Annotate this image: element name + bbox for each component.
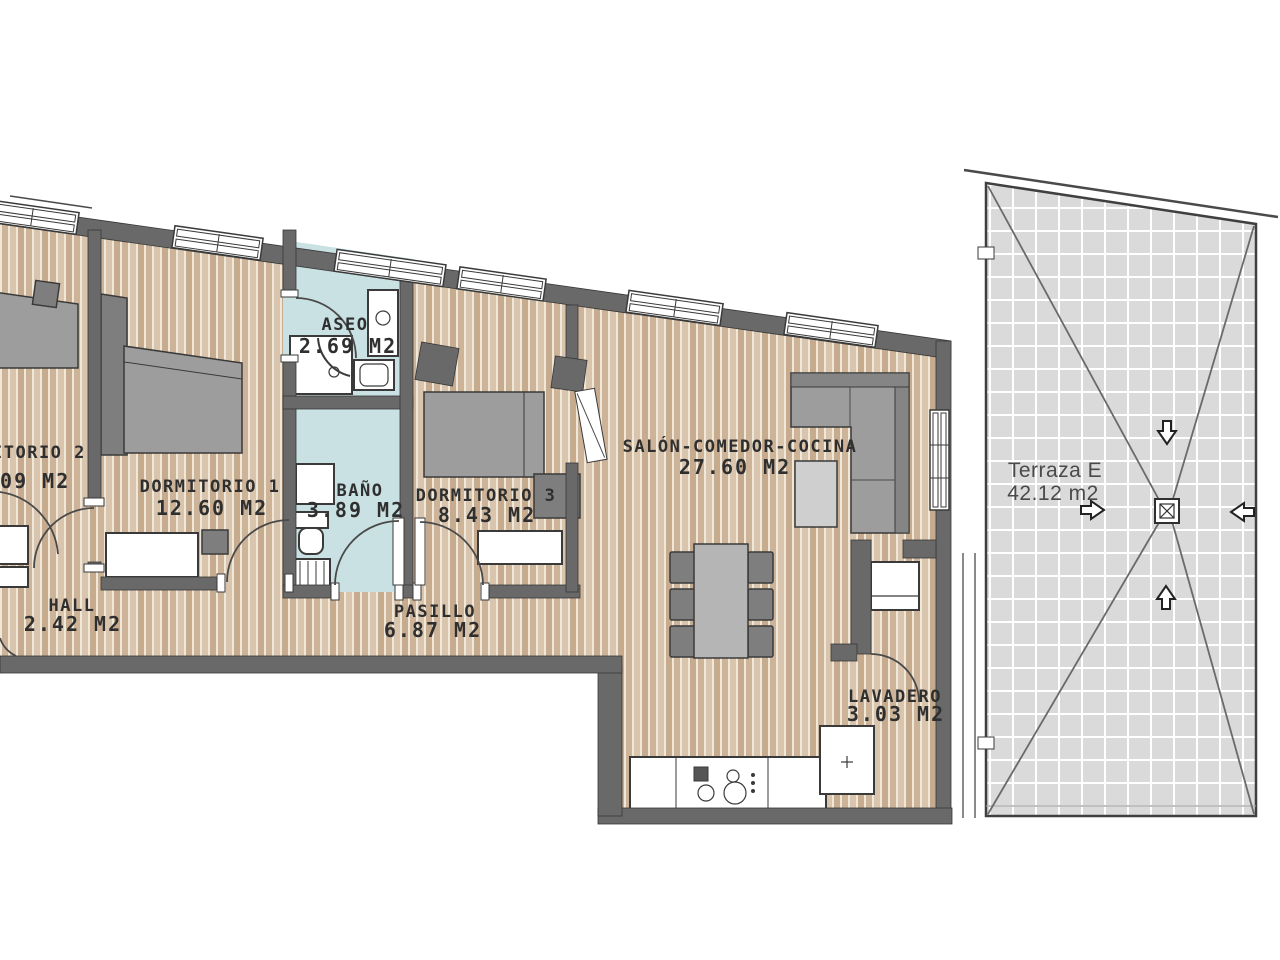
- dining-chair: [748, 626, 773, 657]
- door-jamb: [285, 574, 293, 592]
- dormitorio1-area: 12.60 M2: [156, 496, 268, 520]
- bano-toilet-bowl: [299, 528, 323, 554]
- dormitorio2-nightstand: [32, 280, 59, 307]
- hall-area: 2.42 M2: [24, 612, 122, 636]
- lavadero-partition-foot: [831, 644, 857, 661]
- dormitorio1-bottom-wall: [101, 577, 221, 590]
- floor-drain-icon: [1155, 499, 1179, 523]
- bano-area: 3.89 M2: [307, 498, 405, 522]
- floorplan-canvas: ITORIO 2 .09 M2 DORMITORIO 1 12.60 M2 AS…: [0, 0, 1280, 960]
- salon-label: SALÓN-COMEDOR-COCINA: [623, 435, 858, 457]
- dormitorio2-label: ITORIO 2: [0, 443, 86, 463]
- door-jamb: [395, 583, 403, 600]
- terraza-area: 42.12 m2: [1007, 482, 1099, 505]
- dining-table-set: [670, 544, 773, 658]
- dormitorio1-bed: [124, 346, 242, 453]
- dormitorio1-nightstand: [202, 530, 228, 554]
- salon-side-window: [930, 410, 949, 510]
- dormitorio3-bench: [478, 531, 562, 564]
- dining-chair: [748, 589, 773, 620]
- kitchen-bottom-wall: [598, 808, 952, 824]
- aseo-area: 2.69 M2: [299, 334, 397, 358]
- terrace-edge-notch: [978, 737, 994, 749]
- aseo-bano-divider-wall: [283, 396, 413, 409]
- dining-chair: [670, 626, 695, 657]
- dormitorio3-area: 8.43 M2: [438, 503, 536, 527]
- dormitorio2-partition-wall: [88, 230, 101, 502]
- dormitorio3-bottom-wall: [484, 585, 580, 598]
- lavadero-partition-wall: [851, 540, 871, 654]
- lavadero-area: 3.03 M2: [847, 702, 945, 726]
- door-jamb: [84, 498, 104, 506]
- lavadero-top-wall: [903, 540, 936, 558]
- hall-cabinet: [0, 567, 28, 587]
- door-jamb: [331, 583, 339, 600]
- dormitorio1-bench: [106, 533, 198, 577]
- step-wall: [598, 666, 622, 816]
- door-jamb: [481, 583, 489, 600]
- dormitorio1-aseo-wall-lower: [283, 358, 296, 590]
- door-jamb: [281, 290, 298, 297]
- door-jamb: [413, 583, 421, 600]
- dormitorio1-label: DORMITORIO 1: [140, 477, 281, 497]
- dining-chair: [670, 552, 695, 583]
- dormitorio1-wardrobe: [101, 294, 127, 455]
- aseo-label: ASEO: [322, 315, 369, 335]
- bano-radiator: [292, 559, 330, 587]
- dining-chair: [670, 589, 695, 620]
- dormitorio2-dresser: [0, 526, 28, 564]
- pasillo-area: 6.87 M2: [384, 618, 482, 642]
- dormitorio2-area: .09 M2: [0, 469, 70, 493]
- door-jamb: [217, 574, 225, 592]
- lavadero-appliance: [871, 562, 919, 610]
- dormitorio1-aseo-wall-upper: [283, 230, 296, 293]
- structural-pillar: [551, 356, 587, 392]
- bano-door-leaf: [393, 518, 404, 585]
- dormitorio3-door-leaf: [415, 518, 425, 585]
- washing-machine: [820, 726, 874, 794]
- door-jamb: [281, 355, 298, 362]
- door-jamb: [84, 564, 104, 572]
- hall-bottom-wall: [0, 656, 622, 673]
- kitchen-counter: [630, 757, 826, 811]
- salon-side-table: [795, 461, 837, 527]
- dormitorio3-salon-wall-lower: [566, 463, 578, 592]
- dining-chair: [748, 552, 773, 583]
- terraza-label: Terraza E: [1008, 459, 1102, 482]
- floorplan-drawing: ITORIO 2 .09 M2 DORMITORIO 1 12.60 M2 AS…: [0, 0, 1280, 960]
- dormitorio3-bed: [424, 392, 544, 477]
- dining-table: [694, 544, 748, 658]
- salon-area: 27.60 M2: [679, 455, 791, 479]
- structural-pillar: [415, 342, 459, 386]
- terrace-edge-notch: [978, 247, 994, 259]
